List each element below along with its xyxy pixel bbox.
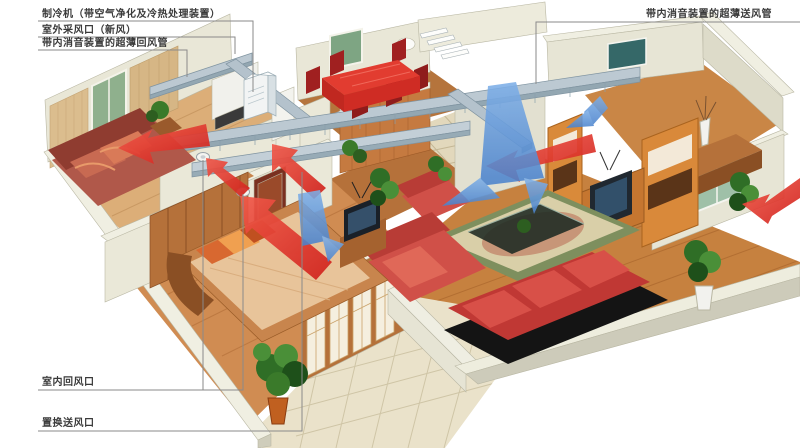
callout-supply-duct: 带内消音装置的超薄送风管 (646, 9, 772, 20)
callout-return-duct: 带内消音装置的超薄回风管 (42, 38, 168, 49)
callout-fresh-air-inlet: 室外采风口（新风） (42, 25, 137, 36)
callout-chiller: 制冷机（带空气净化及冷热处理装置） (42, 9, 221, 20)
bathroom-wall (418, 2, 547, 52)
callout-displacement-supply-outlet: 置换送风口 (42, 418, 95, 429)
study-back-window (608, 38, 646, 70)
hvac-cutaway-diagram: 制冷机（带空气净化及冷热处理装置） 室外采风口（新风） 带内消音装置的超薄回风管… (0, 0, 800, 448)
callout-indoor-return-outlet: 室内回风口 (42, 377, 95, 388)
air-handling-unit (244, 72, 276, 120)
apartment-3d-scene (0, 0, 800, 448)
